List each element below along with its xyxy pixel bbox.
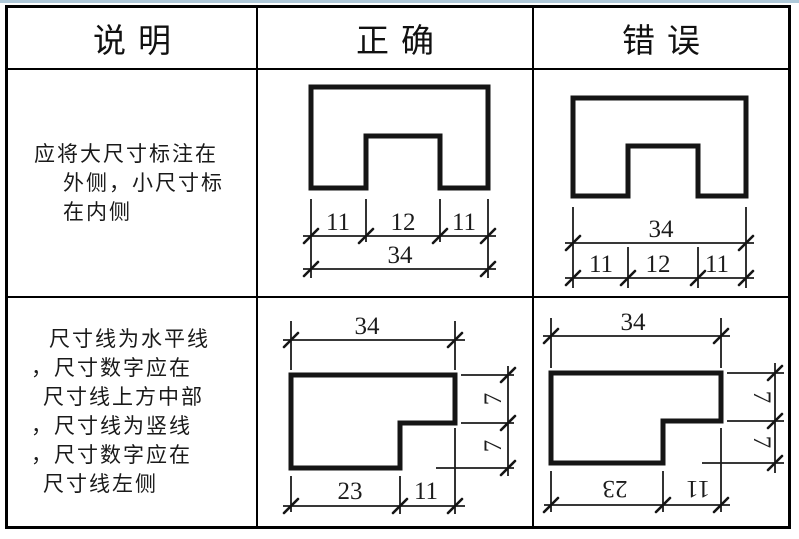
dim-label-11: 11 [414, 478, 438, 505]
description-line: 尺寸线上方中部 [8, 383, 256, 412]
header-wrong: 错误 [534, 8, 788, 70]
page: { "page": {"top_line_color": "#aec8d8"},… [0, 0, 799, 539]
dim-label-7-upper-flipped: 7 [748, 391, 775, 404]
description-line: 应将大尺寸标注在 [8, 140, 256, 169]
figure-u-shape-correct: 11 12 11 34 [258, 70, 532, 296]
dim-label-11-left: 11 [589, 251, 613, 278]
dim-label-11-left: 11 [326, 209, 350, 236]
dim-label-7-lower: 7 [480, 440, 507, 453]
part-outline [311, 87, 488, 188]
dim-label-23-upside-down: 23 [603, 475, 628, 502]
description-line: ，尺寸线为竖线 [8, 412, 256, 441]
dim-label-7-upper: 7 [480, 393, 507, 406]
header-wrong-label: 错误 [610, 14, 712, 62]
header-correct: 正确 [258, 8, 534, 70]
dim-label-11-right: 11 [452, 209, 476, 236]
row2-correct-figure-cell: 34 7 7 23 11 [258, 298, 534, 526]
part-outline [291, 375, 455, 468]
part-outline [551, 373, 721, 463]
figure-l-shape-wrong: 34 7 7 23 11 [534, 298, 788, 526]
dim-label-12: 12 [391, 209, 416, 236]
description-line: 外侧，小尺寸标 [8, 169, 256, 198]
dim-label-34: 34 [388, 242, 414, 269]
header-description: 说明 [8, 8, 258, 70]
top-divider-line [0, 0, 799, 3]
row2-description-cell: 尺寸线为水平线 ，尺寸数字应在 尺寸线上方中部 ，尺寸线为竖线 ，尺寸数字应在 … [8, 298, 258, 526]
row1-correct-figure-cell: 11 12 11 34 [258, 70, 534, 298]
dim-label-34: 34 [355, 313, 381, 340]
row1-description-cell: 应将大尺寸标注在 外侧，小尺寸标 在内侧 [8, 70, 258, 298]
row1-wrong-figure-cell: 34 11 12 11 [534, 70, 788, 298]
row2-wrong-figure-cell: 34 7 7 23 11 [534, 298, 788, 526]
part-outline [573, 98, 746, 196]
dim-label-11-right: 11 [705, 251, 729, 278]
description-line: 在内侧 [8, 198, 256, 227]
header-description-label: 说明 [81, 14, 183, 62]
dim-label-12: 12 [646, 251, 671, 278]
dim-label-7-lower-flipped: 7 [748, 436, 775, 449]
dim-label-23: 23 [338, 478, 363, 505]
figure-l-shape-correct: 34 7 7 23 11 [258, 298, 532, 526]
figure-u-shape-wrong: 34 11 12 11 [534, 70, 788, 296]
description-line: 尺寸线为水平线 [8, 325, 256, 354]
dim-label-34: 34 [621, 309, 647, 336]
description-line: ，尺寸数字应在 [8, 354, 256, 383]
header-correct-label: 正确 [344, 14, 446, 62]
description-line: ，尺寸数字应在 [8, 441, 256, 470]
dimensioning-standards-table: 说明 正确 错误 应将大尺寸标注在 外侧，小尺寸标 在内侧 11 12 11 3… [5, 5, 791, 529]
description-line: 尺寸线左侧 [8, 470, 256, 499]
dim-label-34: 34 [649, 216, 675, 243]
extension-lines-right [702, 373, 784, 463]
dim-label-11-upside-down: 11 [686, 475, 710, 502]
